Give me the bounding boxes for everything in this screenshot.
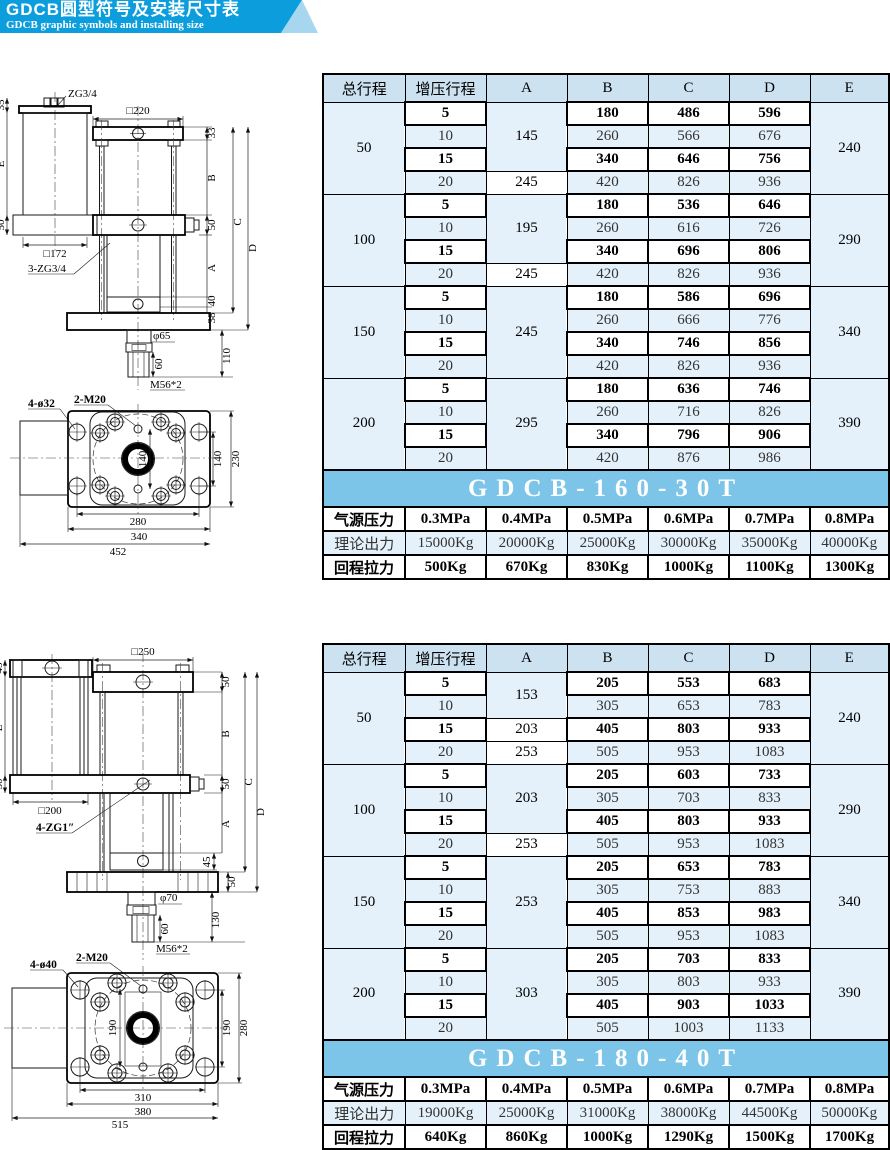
spec-label: 理论出力 bbox=[323, 1101, 405, 1125]
spec-row: 理论出力15000Kg20000Kg25000Kg30000Kg35000Kg4… bbox=[323, 531, 889, 555]
dimension-table: 总行程增压行程ABCDE5051451804865962401026056667… bbox=[322, 73, 890, 580]
boost-stroke-cell: 5 bbox=[405, 764, 486, 787]
spec-row: 回程拉力500Kg670Kg830Kg1000Kg1100Kg1300Kg bbox=[323, 555, 889, 579]
dim-cell: 305 bbox=[567, 695, 648, 718]
column-header: E bbox=[810, 74, 889, 102]
d2-thread: M56*2 bbox=[156, 943, 188, 955]
d1-bottom-view: 4-ø32 2-M20 bbox=[10, 394, 242, 558]
dim-cell: 205 bbox=[567, 764, 648, 787]
dim-cell: 340 bbox=[567, 240, 648, 263]
table-row: 205059531083 bbox=[323, 925, 889, 948]
dim-cell: 340 bbox=[567, 424, 648, 447]
table-row: 15405853983 bbox=[323, 902, 889, 925]
table-row: 2005295180636746390 bbox=[323, 378, 889, 401]
spec-value: 35000Kg bbox=[729, 531, 810, 555]
spec-label: 气源压力 bbox=[323, 507, 405, 531]
spec-value: 50000Kg bbox=[810, 1101, 889, 1125]
dim-cell: 666 bbox=[648, 309, 729, 332]
table-row: 10260566676 bbox=[323, 125, 889, 148]
dim-cell: 933 bbox=[729, 971, 810, 994]
drawing-gdcb160: ZG3/4 35 E 50 □172 3-ZG3/4 □220 bbox=[0, 60, 322, 570]
model-number: GDCB-180-40T bbox=[323, 1040, 889, 1077]
dim-cell: 853 bbox=[648, 902, 729, 925]
spec-value: 38000Kg bbox=[648, 1101, 729, 1125]
spec-row: 气源压力0.3MPa0.4MPa0.5MPa0.6MPa0.7MPa0.8MPa bbox=[323, 1077, 889, 1101]
dim-cell: 776 bbox=[729, 309, 810, 332]
d2-dim-60: 60 bbox=[159, 923, 171, 935]
dim-cell: 505 bbox=[567, 741, 648, 764]
d1-dim-452: 452 bbox=[110, 546, 127, 558]
dim-cell: 703 bbox=[648, 948, 729, 971]
d1-port-label: ZG3/4 bbox=[68, 88, 97, 100]
dim-cell: 405 bbox=[567, 902, 648, 925]
boost-stroke-cell: 10 bbox=[405, 217, 486, 240]
column-header: E bbox=[810, 644, 889, 672]
dim-cell: 856 bbox=[729, 332, 810, 355]
d2-dim-45-mid: 45 bbox=[201, 856, 213, 868]
spec-label: 回程拉力 bbox=[323, 555, 405, 579]
column-header: B bbox=[567, 644, 648, 672]
dim-a-cell: 295 bbox=[486, 378, 567, 470]
table-row: 202535059531083 bbox=[323, 741, 889, 764]
dim-cell: 826 bbox=[729, 401, 810, 424]
dim-cell: 260 bbox=[567, 309, 648, 332]
d1-dim-110: 110 bbox=[221, 347, 233, 364]
dim-cell: 405 bbox=[567, 718, 648, 741]
page-subtitle: GDCB graphic symbols and installing size bbox=[6, 19, 322, 31]
d2-dim-280: 280 bbox=[238, 1019, 250, 1036]
d1-dim-280: 280 bbox=[130, 516, 147, 528]
dim-cell: 646 bbox=[729, 194, 810, 217]
dim-cell: 586 bbox=[648, 286, 729, 309]
spec-value: 830Kg bbox=[567, 555, 648, 579]
dim-cell: 180 bbox=[567, 194, 648, 217]
d2-dim-E: E bbox=[0, 724, 5, 731]
column-header: D bbox=[729, 644, 810, 672]
spec-value: 1100Kg bbox=[729, 555, 810, 579]
dim-a-cell: 245 bbox=[486, 171, 567, 194]
d2-dia-rod: φ70 bbox=[160, 892, 178, 904]
dim-cell: 1083 bbox=[729, 925, 810, 948]
d2-dim-310: 310 bbox=[135, 1092, 152, 1104]
table-row: 15405803933 bbox=[323, 810, 889, 833]
spec-row: 气源压力0.3MPa0.4MPa0.5MPa0.6MPa0.7MPa0.8MPa bbox=[323, 507, 889, 531]
spec-value: 500Kg bbox=[405, 555, 486, 579]
d1-sq172: □172 bbox=[43, 248, 66, 260]
boost-stroke-cell: 20 bbox=[405, 741, 486, 764]
model-number: GDCB-160-30T bbox=[323, 470, 889, 507]
dim-cell: 1133 bbox=[729, 1017, 810, 1040]
page-header: GDCB圆型符号及安装尺寸表 GDCB graphic symbols and … bbox=[0, 0, 322, 33]
d1-dim-50-left: 50 bbox=[0, 219, 7, 231]
dim-cell: 305 bbox=[567, 879, 648, 902]
dim-cell: 566 bbox=[648, 125, 729, 148]
d2-dim-190-right: 190 bbox=[221, 1019, 233, 1036]
dim-cell: 756 bbox=[729, 148, 810, 171]
boost-stroke-cell: 5 bbox=[405, 102, 486, 125]
dim-cell: 936 bbox=[729, 263, 810, 286]
dim-cell: 260 bbox=[567, 125, 648, 148]
table-row: 10260666776 bbox=[323, 309, 889, 332]
dim-e-cell: 290 bbox=[810, 764, 889, 856]
dim-cell: 806 bbox=[729, 240, 810, 263]
dim-e-cell: 340 bbox=[810, 856, 889, 948]
d1-dim-C: C bbox=[232, 218, 244, 225]
table-gdcb160-container: 总行程增压行程ABCDE5051451804865962401026056667… bbox=[322, 73, 888, 580]
table-row: 10305703833 bbox=[323, 787, 889, 810]
spec-value: 1300Kg bbox=[810, 555, 889, 579]
dim-cell: 903 bbox=[648, 994, 729, 1017]
boost-stroke-cell: 20 bbox=[405, 833, 486, 856]
dim-cell: 796 bbox=[648, 424, 729, 447]
dim-cell: 653 bbox=[648, 695, 729, 718]
dim-cell: 833 bbox=[729, 787, 810, 810]
spec-row: 理论出力19000Kg25000Kg31000Kg38000Kg44500Kg5… bbox=[323, 1101, 889, 1125]
spec-value: 0.3MPa bbox=[405, 1077, 486, 1101]
dim-cell: 205 bbox=[567, 948, 648, 971]
table-row: 505145180486596240 bbox=[323, 102, 889, 125]
dim-cell: 505 bbox=[567, 833, 648, 856]
dim-cell: 936 bbox=[729, 355, 810, 378]
column-header: A bbox=[486, 74, 567, 102]
d2-dim-130: 130 bbox=[210, 911, 222, 928]
dim-cell: 826 bbox=[648, 355, 729, 378]
d1-label-holes: 4-ø32 bbox=[28, 398, 55, 410]
dim-cell: 803 bbox=[648, 810, 729, 833]
table-header-row: 总行程增压行程ABCDE bbox=[323, 74, 889, 102]
dim-cell: 305 bbox=[567, 787, 648, 810]
boost-stroke-cell: 15 bbox=[405, 810, 486, 833]
spec-value: 40000Kg bbox=[810, 531, 889, 555]
dim-cell: 953 bbox=[648, 925, 729, 948]
spec-value: 0.7MPa bbox=[729, 1077, 810, 1101]
spec-value: 0.4MPa bbox=[486, 1077, 567, 1101]
dim-cell: 260 bbox=[567, 401, 648, 424]
d1-side-view: ZG3/4 35 E 50 □172 3-ZG3/4 □220 bbox=[0, 88, 259, 391]
dim-cell: 420 bbox=[567, 447, 648, 470]
spec-label: 气源压力 bbox=[323, 1077, 405, 1101]
d1-dim-60: 60 bbox=[153, 358, 165, 370]
dim-cell: 746 bbox=[648, 332, 729, 355]
spec-value: 30000Kg bbox=[648, 531, 729, 555]
spec-value: 0.6MPa bbox=[648, 507, 729, 531]
table-row: 15340746856 bbox=[323, 332, 889, 355]
dim-e-cell: 290 bbox=[810, 194, 889, 286]
dim-a-cell: 253 bbox=[486, 856, 567, 948]
total-stroke-cell: 200 bbox=[323, 378, 405, 470]
boost-stroke-cell: 10 bbox=[405, 309, 486, 332]
dim-cell: 933 bbox=[729, 810, 810, 833]
dim-a-cell: 153 bbox=[486, 672, 567, 718]
total-stroke-cell: 50 bbox=[323, 102, 405, 194]
dim-cell: 783 bbox=[729, 695, 810, 718]
boost-stroke-cell: 5 bbox=[405, 286, 486, 309]
dim-cell: 803 bbox=[648, 718, 729, 741]
d1-dim-140-inner: 140 bbox=[137, 450, 149, 467]
dim-cell: 953 bbox=[648, 833, 729, 856]
dim-cell: 596 bbox=[729, 102, 810, 125]
boost-stroke-cell: 10 bbox=[405, 401, 486, 424]
dim-cell: 505 bbox=[567, 925, 648, 948]
spec-value: 25000Kg bbox=[486, 1101, 567, 1125]
column-header: 增压行程 bbox=[405, 74, 486, 102]
table-row: 2050510031133 bbox=[323, 1017, 889, 1040]
dim-cell: 420 bbox=[567, 171, 648, 194]
total-stroke-cell: 200 bbox=[323, 948, 405, 1040]
d2-bottom-view: 4-ø40 2-M20 190 bbox=[4, 952, 250, 1129]
dim-cell: 405 bbox=[567, 994, 648, 1017]
dim-cell: 683 bbox=[729, 672, 810, 695]
dim-e-cell: 240 bbox=[810, 102, 889, 194]
table-row: 20245420826936 bbox=[323, 171, 889, 194]
table-row: 10305753883 bbox=[323, 879, 889, 902]
dim-cell: 716 bbox=[648, 401, 729, 424]
d2-dim-380: 380 bbox=[135, 1106, 152, 1118]
dim-cell: 696 bbox=[648, 240, 729, 263]
spec-value: 25000Kg bbox=[567, 531, 648, 555]
boost-stroke-cell: 15 bbox=[405, 902, 486, 925]
total-stroke-cell: 100 bbox=[323, 194, 405, 286]
boost-stroke-cell: 10 bbox=[405, 879, 486, 902]
spec-value: 0.8MPa bbox=[810, 507, 889, 531]
dim-cell: 906 bbox=[729, 424, 810, 447]
d2-dim-A: A bbox=[220, 820, 232, 828]
d2-dim-C: C bbox=[243, 778, 255, 785]
boost-stroke-cell: 15 bbox=[405, 424, 486, 447]
dim-cell: 703 bbox=[648, 787, 729, 810]
dim-cell: 1003 bbox=[648, 1017, 729, 1040]
d1-label-m20: 2-M20 bbox=[74, 394, 106, 406]
dimension-table: 总行程增压行程ABCDE5051532055536832401030565378… bbox=[322, 643, 890, 1150]
d1-dim-230: 230 bbox=[230, 450, 242, 467]
boost-stroke-cell: 20 bbox=[405, 925, 486, 948]
model-banner-row: GDCB-180-40T bbox=[323, 1040, 889, 1077]
dim-cell: 616 bbox=[648, 217, 729, 240]
column-header: 总行程 bbox=[323, 74, 405, 102]
d1-dim-B: B bbox=[206, 174, 218, 181]
column-header: D bbox=[729, 74, 810, 102]
d1-dim-50-right: 50 bbox=[206, 219, 218, 231]
d2-dim-B: B bbox=[220, 730, 232, 737]
spec-value: 0.5MPa bbox=[567, 507, 648, 531]
dim-cell: 753 bbox=[648, 879, 729, 902]
table-gdcb180-container: 总行程增压行程ABCDE5051532055536832401030565378… bbox=[322, 643, 888, 1150]
d2-dim-50-right: 50 bbox=[220, 778, 232, 790]
d2-label-holes: 4-ø40 bbox=[30, 959, 57, 971]
dim-a-cell: 303 bbox=[486, 948, 567, 1040]
boost-stroke-cell: 20 bbox=[405, 447, 486, 470]
d1-dia-rod: φ65 bbox=[153, 330, 171, 342]
boost-stroke-cell: 20 bbox=[405, 263, 486, 286]
boost-stroke-cell: 5 bbox=[405, 378, 486, 401]
d1-dim-38: 38 bbox=[206, 312, 218, 324]
spec-label: 理论出力 bbox=[323, 531, 405, 555]
column-header: A bbox=[486, 644, 567, 672]
boost-stroke-cell: 5 bbox=[405, 948, 486, 971]
dim-cell: 553 bbox=[648, 672, 729, 695]
dim-cell: 936 bbox=[729, 171, 810, 194]
table-row: 2005303205703833390 bbox=[323, 948, 889, 971]
d1-dim-140-right: 140 bbox=[212, 450, 224, 467]
boost-stroke-cell: 15 bbox=[405, 994, 486, 1017]
d2-dim-50-left: 50 bbox=[0, 778, 5, 790]
spec-value: 0.8MPa bbox=[810, 1077, 889, 1101]
dim-cell: 803 bbox=[648, 971, 729, 994]
boost-stroke-cell: 15 bbox=[405, 148, 486, 171]
spec-value: 0.7MPa bbox=[729, 507, 810, 531]
dim-cell: 676 bbox=[729, 125, 810, 148]
table-row: 1005195180536646290 bbox=[323, 194, 889, 217]
d1-dim-D: D bbox=[247, 244, 259, 252]
d1-label-3zg: 3-ZG3/4 bbox=[28, 263, 66, 275]
table-row: 15340646756 bbox=[323, 148, 889, 171]
dim-cell: 826 bbox=[648, 263, 729, 286]
dim-e-cell: 390 bbox=[810, 378, 889, 470]
boost-stroke-cell: 15 bbox=[405, 332, 486, 355]
dim-a-cell: 195 bbox=[486, 194, 567, 263]
column-header: 总行程 bbox=[323, 644, 405, 672]
spec-value: 0.4MPa bbox=[486, 507, 567, 531]
dim-cell: 726 bbox=[729, 217, 810, 240]
boost-stroke-cell: 20 bbox=[405, 355, 486, 378]
spec-value: 19000Kg bbox=[405, 1101, 486, 1125]
dim-cell: 536 bbox=[648, 194, 729, 217]
dim-cell: 783 bbox=[729, 856, 810, 879]
table-row: 505153205553683240 bbox=[323, 672, 889, 695]
dim-a-cell: 253 bbox=[486, 833, 567, 856]
spec-value: 44500Kg bbox=[729, 1101, 810, 1125]
dim-cell: 733 bbox=[729, 764, 810, 787]
boost-stroke-cell: 15 bbox=[405, 240, 486, 263]
column-header: 增压行程 bbox=[405, 644, 486, 672]
boost-stroke-cell: 20 bbox=[405, 1017, 486, 1040]
dim-cell: 746 bbox=[729, 378, 810, 401]
dim-cell: 646 bbox=[648, 148, 729, 171]
dim-cell: 696 bbox=[729, 286, 810, 309]
dim-cell: 420 bbox=[567, 263, 648, 286]
d1-dim-33: 33 bbox=[206, 127, 218, 139]
d2-label-m20: 2-M20 bbox=[76, 952, 108, 964]
d2-dim-515: 515 bbox=[112, 1119, 129, 1129]
total-stroke-cell: 100 bbox=[323, 764, 405, 856]
boost-stroke-cell: 10 bbox=[405, 787, 486, 810]
d2-side-view: 45 E □250 50 □200 4-ZG1″ bbox=[0, 646, 267, 960]
d1-dim-40: 40 bbox=[206, 295, 218, 307]
d2-dim-50-top: 50 bbox=[220, 676, 232, 688]
dim-a-cell: 253 bbox=[486, 741, 567, 764]
dim-cell: 180 bbox=[567, 378, 648, 401]
table-row: 202535059531083 bbox=[323, 833, 889, 856]
spec-value: 0.6MPa bbox=[648, 1077, 729, 1101]
d2-dim-D: D bbox=[255, 808, 267, 816]
d1-dim-E: E bbox=[0, 160, 7, 167]
spec-value: 20000Kg bbox=[486, 531, 567, 555]
dim-cell: 983 bbox=[729, 902, 810, 925]
d2-dim-45-top: 45 bbox=[0, 662, 5, 674]
page-title: GDCB圆型符号及安装尺寸表 bbox=[6, 0, 322, 19]
dim-cell: 1083 bbox=[729, 741, 810, 764]
dim-cell: 953 bbox=[648, 741, 729, 764]
boost-stroke-cell: 10 bbox=[405, 971, 486, 994]
drawing-gdcb180: 45 E □250 50 □200 4-ZG1″ bbox=[0, 630, 322, 1129]
table-row: 15340696806 bbox=[323, 240, 889, 263]
dim-a-cell: 145 bbox=[486, 102, 567, 171]
dim-cell: 505 bbox=[567, 1017, 648, 1040]
dim-cell: 340 bbox=[567, 148, 648, 171]
d1-dim-340: 340 bbox=[131, 531, 148, 543]
d2-sq200: □200 bbox=[38, 805, 62, 817]
table-header-row: 总行程增压行程ABCDE bbox=[323, 644, 889, 672]
model-banner-row: GDCB-160-30T bbox=[323, 470, 889, 507]
d1-sq220: □220 bbox=[126, 105, 150, 117]
table-row: 10305803933 bbox=[323, 971, 889, 994]
boost-stroke-cell: 10 bbox=[405, 695, 486, 718]
boost-stroke-cell: 5 bbox=[405, 194, 486, 217]
boost-stroke-cell: 10 bbox=[405, 125, 486, 148]
dim-a-cell: 245 bbox=[486, 263, 567, 286]
dim-cell: 876 bbox=[648, 447, 729, 470]
table-row: 10305653783 bbox=[323, 695, 889, 718]
dim-cell: 205 bbox=[567, 856, 648, 879]
d1-thread: M56*2 bbox=[150, 379, 182, 391]
spec-value: 0.5MPa bbox=[567, 1077, 648, 1101]
dim-cell: 260 bbox=[567, 217, 648, 240]
dim-cell: 826 bbox=[648, 171, 729, 194]
dim-cell: 603 bbox=[648, 764, 729, 787]
table-row: 20420826936 bbox=[323, 355, 889, 378]
dim-cell: 405 bbox=[567, 810, 648, 833]
total-stroke-cell: 150 bbox=[323, 856, 405, 948]
dim-e-cell: 390 bbox=[810, 948, 889, 1040]
dim-cell: 180 bbox=[567, 102, 648, 125]
dim-cell: 486 bbox=[648, 102, 729, 125]
dim-cell: 205 bbox=[567, 672, 648, 695]
dim-e-cell: 240 bbox=[810, 672, 889, 764]
d2-dim-190-inner: 190 bbox=[107, 1019, 119, 1036]
dim-a-cell: 203 bbox=[486, 718, 567, 741]
dim-cell: 636 bbox=[648, 378, 729, 401]
dim-cell: 833 bbox=[729, 948, 810, 971]
dim-a-cell: 203 bbox=[486, 764, 567, 833]
spec-value: 670Kg bbox=[486, 555, 567, 579]
table-row: 10260616726 bbox=[323, 217, 889, 240]
dim-cell: 653 bbox=[648, 856, 729, 879]
dim-cell: 180 bbox=[567, 286, 648, 309]
total-stroke-cell: 150 bbox=[323, 286, 405, 378]
spec-value: 0.3MPa bbox=[405, 507, 486, 531]
dim-cell: 1033 bbox=[729, 994, 810, 1017]
table-row: 20245420826936 bbox=[323, 263, 889, 286]
boost-stroke-cell: 20 bbox=[405, 171, 486, 194]
header-banner: GDCB圆型符号及安装尺寸表 GDCB graphic symbols and … bbox=[0, 0, 322, 33]
d1-dim-35: 35 bbox=[0, 99, 7, 111]
spec-value: 1000Kg bbox=[648, 555, 729, 579]
dim-cell: 883 bbox=[729, 879, 810, 902]
boost-stroke-cell: 5 bbox=[405, 856, 486, 879]
dim-cell: 933 bbox=[729, 718, 810, 741]
dim-cell: 420 bbox=[567, 355, 648, 378]
table-row: 10260716826 bbox=[323, 401, 889, 424]
table-row: 15203405803933 bbox=[323, 718, 889, 741]
boost-stroke-cell: 5 bbox=[405, 672, 486, 695]
d2-sq250: □250 bbox=[131, 646, 155, 658]
column-header: C bbox=[648, 644, 729, 672]
table-row: 154059031033 bbox=[323, 994, 889, 1017]
table-row: 15340796906 bbox=[323, 424, 889, 447]
dim-cell: 1083 bbox=[729, 833, 810, 856]
d2-label-zg1: 4-ZG1″ bbox=[36, 822, 74, 834]
dim-cell: 305 bbox=[567, 971, 648, 994]
